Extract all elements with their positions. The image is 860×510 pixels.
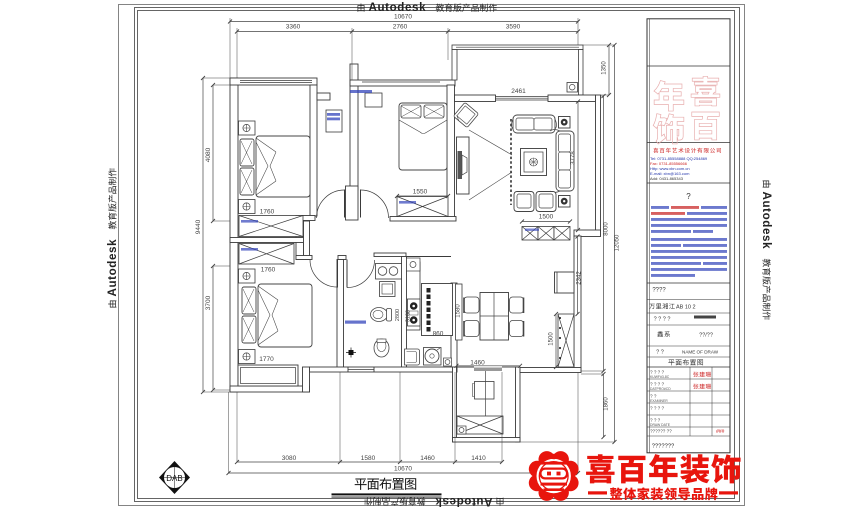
- svg-text:3590: 3590: [506, 24, 521, 31]
- svg-text:1500: 1500: [549, 332, 555, 346]
- svg-text:??/??: ??/??: [699, 333, 713, 339]
- svg-text:? ?: ? ?: [650, 393, 657, 398]
- svg-text:Autodesk: Autodesk: [435, 495, 493, 508]
- svg-text:3360: 3360: [286, 24, 301, 31]
- svg-text:1550: 1550: [413, 189, 428, 196]
- svg-text:NAME OF DRAW: NAME OF DRAW: [682, 350, 719, 355]
- svg-text:AB 10 2: AB 10 2: [676, 305, 696, 311]
- svg-text:1770: 1770: [259, 356, 274, 363]
- svg-text:12050: 12050: [615, 234, 621, 251]
- svg-text:860: 860: [433, 331, 444, 338]
- svg-text:DRAW DATE: DRAW DATE: [650, 423, 671, 427]
- svg-text:EXAMINER: EXAMINER: [650, 399, 668, 403]
- svg-text:3778: 3778: [571, 151, 577, 165]
- svg-text:###: ###: [716, 429, 725, 435]
- svg-text:?: ?: [686, 192, 691, 201]
- svg-text:?????? ??: ?????? ??: [650, 428, 672, 433]
- svg-text:4080: 4080: [205, 147, 212, 162]
- svg-text:9440: 9440: [195, 219, 202, 234]
- svg-text:10670: 10670: [394, 466, 412, 473]
- svg-text:1580: 1580: [361, 455, 376, 462]
- svg-text:KUWF#3-8C: KUWF#3-8C: [650, 375, 670, 379]
- svg-text:2461: 2461: [511, 88, 526, 95]
- svg-text:? ? ? ?: ? ? ? ?: [650, 369, 664, 374]
- svg-text:1760: 1760: [261, 267, 276, 274]
- svg-text:DATPRO#CD: DATPRO#CD: [650, 387, 671, 391]
- svg-text:? ? ?: ? ? ?: [650, 417, 661, 422]
- svg-text:1500: 1500: [539, 214, 554, 221]
- svg-text:Autodesk: Autodesk: [369, 1, 427, 14]
- svg-text:8000: 8000: [604, 222, 610, 236]
- svg-text:? ? ? ?: ? ? ? ?: [654, 317, 671, 323]
- svg-text:10670: 10670: [394, 14, 412, 21]
- svg-text:1350: 1350: [602, 61, 608, 75]
- svg-text:???????: ???????: [652, 444, 675, 450]
- svg-text:Autodesk: Autodesk: [760, 192, 773, 250]
- svg-text:1860: 1860: [604, 397, 610, 411]
- svg-text:3080: 3080: [282, 455, 297, 462]
- svg-text:1760: 1760: [260, 209, 275, 216]
- svg-text:2760: 2760: [393, 24, 408, 31]
- svg-text:????: ????: [652, 288, 666, 294]
- svg-text:1460: 1460: [420, 455, 435, 462]
- svg-text:? ? ? ?: ? ? ? ?: [650, 381, 664, 386]
- svg-text:Autodesk: Autodesk: [106, 239, 119, 297]
- svg-text:1410: 1410: [471, 455, 486, 462]
- svg-text:3100: 3100: [406, 310, 412, 322]
- svg-text:1580: 1580: [456, 304, 462, 318]
- svg-text:2800: 2800: [395, 309, 401, 321]
- svg-text:Add: 0431-865343: Add: 0431-865343: [650, 176, 684, 181]
- svg-text:3700: 3700: [205, 295, 212, 310]
- svg-text:? ?: ? ?: [656, 350, 664, 356]
- svg-text:? ? ? ?: ? ? ? ?: [650, 405, 664, 410]
